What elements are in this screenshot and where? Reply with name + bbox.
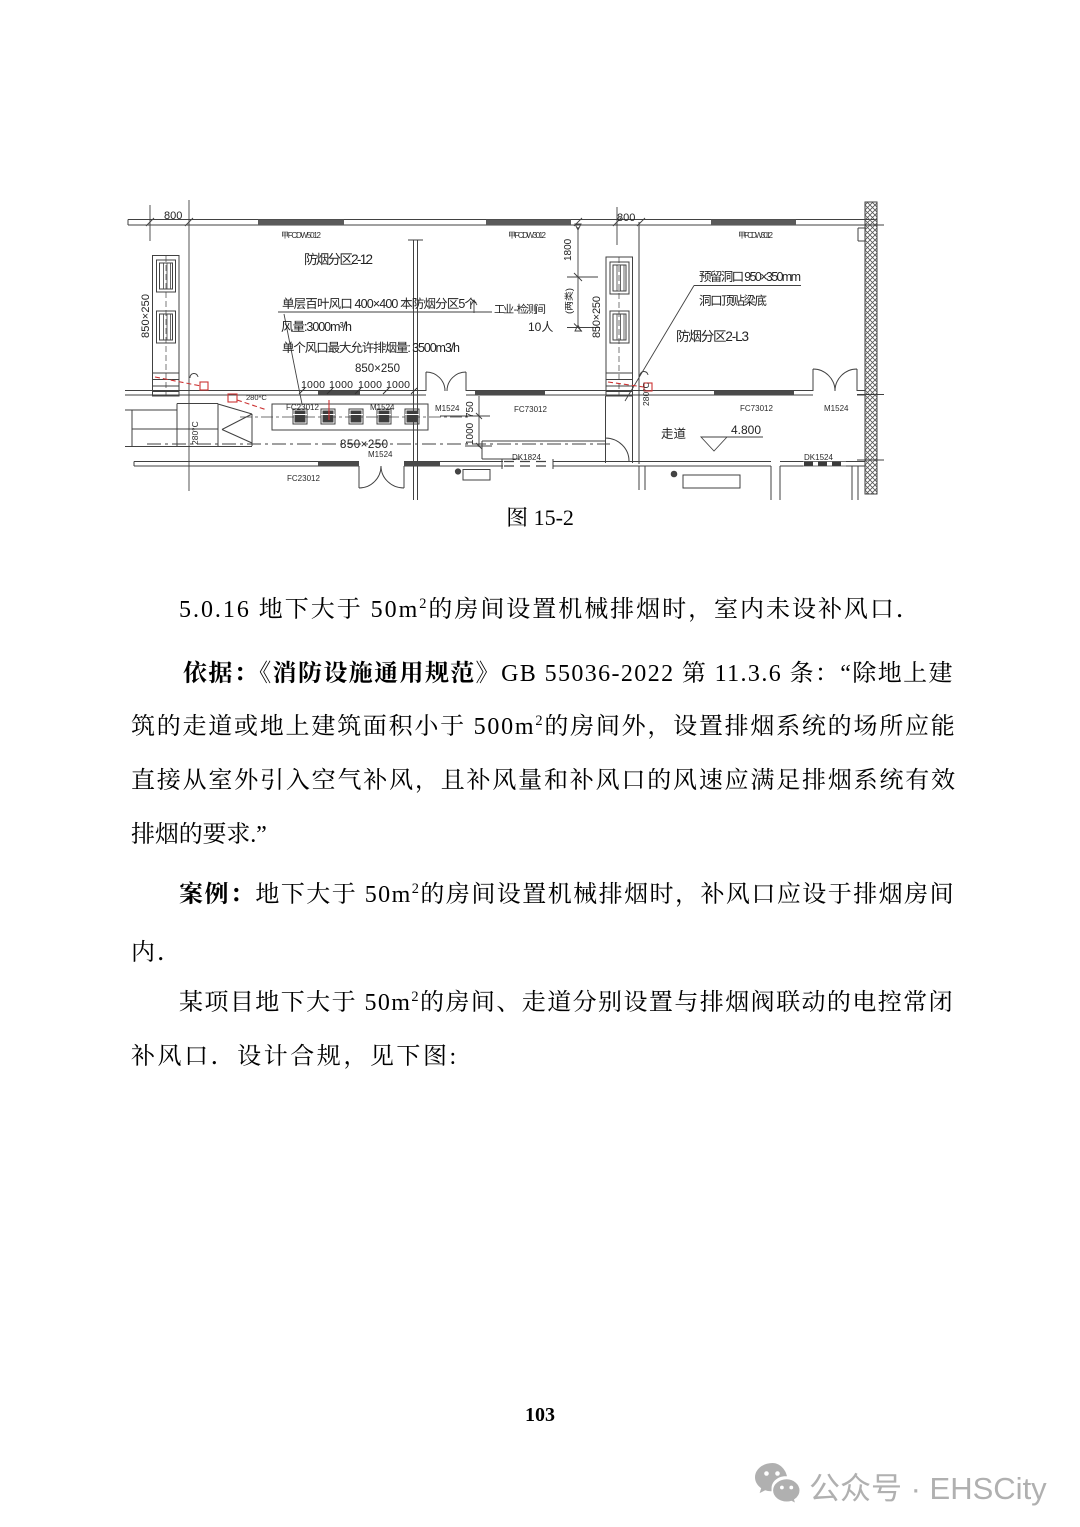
svg-text:FC73012: FC73012 xyxy=(740,404,773,413)
svg-text:1000: 1000 xyxy=(301,379,325,391)
svg-text:DK1524: DK1524 xyxy=(804,453,833,462)
svg-text:防烟分区2-12: 防烟分区2-12 xyxy=(304,252,373,267)
svg-text:单层百叶风口 400×400 本防烟分区5个: 单层百叶风口 400×400 本防烟分区5个 xyxy=(282,297,477,311)
svg-text:风量:3000m³/h: 风量:3000m³/h xyxy=(281,320,352,334)
svg-text:850×250: 850×250 xyxy=(140,294,152,338)
svg-text:M1524: M1524 xyxy=(824,404,849,413)
svg-text:280°C: 280°C xyxy=(190,421,200,445)
svg-text:750: 750 xyxy=(465,401,476,418)
svg-text:1000: 1000 xyxy=(465,422,476,445)
svg-text:防烟分区2-L3: 防烟分区2-L3 xyxy=(676,329,749,344)
svg-text:工业 - 检测间: 工业 - 检测间 xyxy=(494,303,546,316)
svg-text:洞口顶贴梁底: 洞口顶贴梁底 xyxy=(699,294,767,308)
svg-text:FC23012: FC23012 xyxy=(287,474,320,483)
svg-text:850×250: 850×250 xyxy=(591,296,603,338)
svg-text:1000: 1000 xyxy=(329,379,353,391)
svg-text:DK1824: DK1824 xyxy=(512,453,541,462)
svg-text:1800: 1800 xyxy=(563,238,574,261)
svg-text:(两类): (两类) xyxy=(564,288,574,314)
svg-text:FC73012: FC73012 xyxy=(514,405,547,414)
svg-text:单个风口最大允许排烟量: 3500m3/h: 单个风口最大允许排烟量: 3500m3/h xyxy=(282,341,460,355)
svg-text:M1524: M1524 xyxy=(368,450,393,459)
svg-text:800: 800 xyxy=(164,210,182,222)
svg-text:850×250: 850×250 xyxy=(355,363,400,375)
svg-text:280°C: 280°C xyxy=(641,382,651,406)
svg-text:M1524: M1524 xyxy=(435,404,460,413)
svg-text:甲FCDW3012: 甲FCDW3012 xyxy=(738,231,774,240)
svg-text:甲FCDW3012: 甲FCDW3012 xyxy=(508,231,547,240)
svg-text:800: 800 xyxy=(617,212,635,224)
svg-text:4.800: 4.800 xyxy=(731,423,761,437)
svg-text:走道: 走道 xyxy=(661,427,686,441)
svg-text:预留洞口 950×350mm: 预留洞口 950×350mm xyxy=(699,270,801,284)
svg-text:甲FCDW5012: 甲FCDW5012 xyxy=(281,231,322,240)
svg-text:M1524: M1524 xyxy=(370,403,395,412)
svg-text:1000: 1000 xyxy=(358,379,382,391)
svg-text:10人: 10人 xyxy=(528,320,553,334)
svg-text:280*C: 280*C xyxy=(246,393,267,402)
svg-text:1000: 1000 xyxy=(386,379,410,391)
svg-text:FC23012: FC23012 xyxy=(286,403,319,412)
